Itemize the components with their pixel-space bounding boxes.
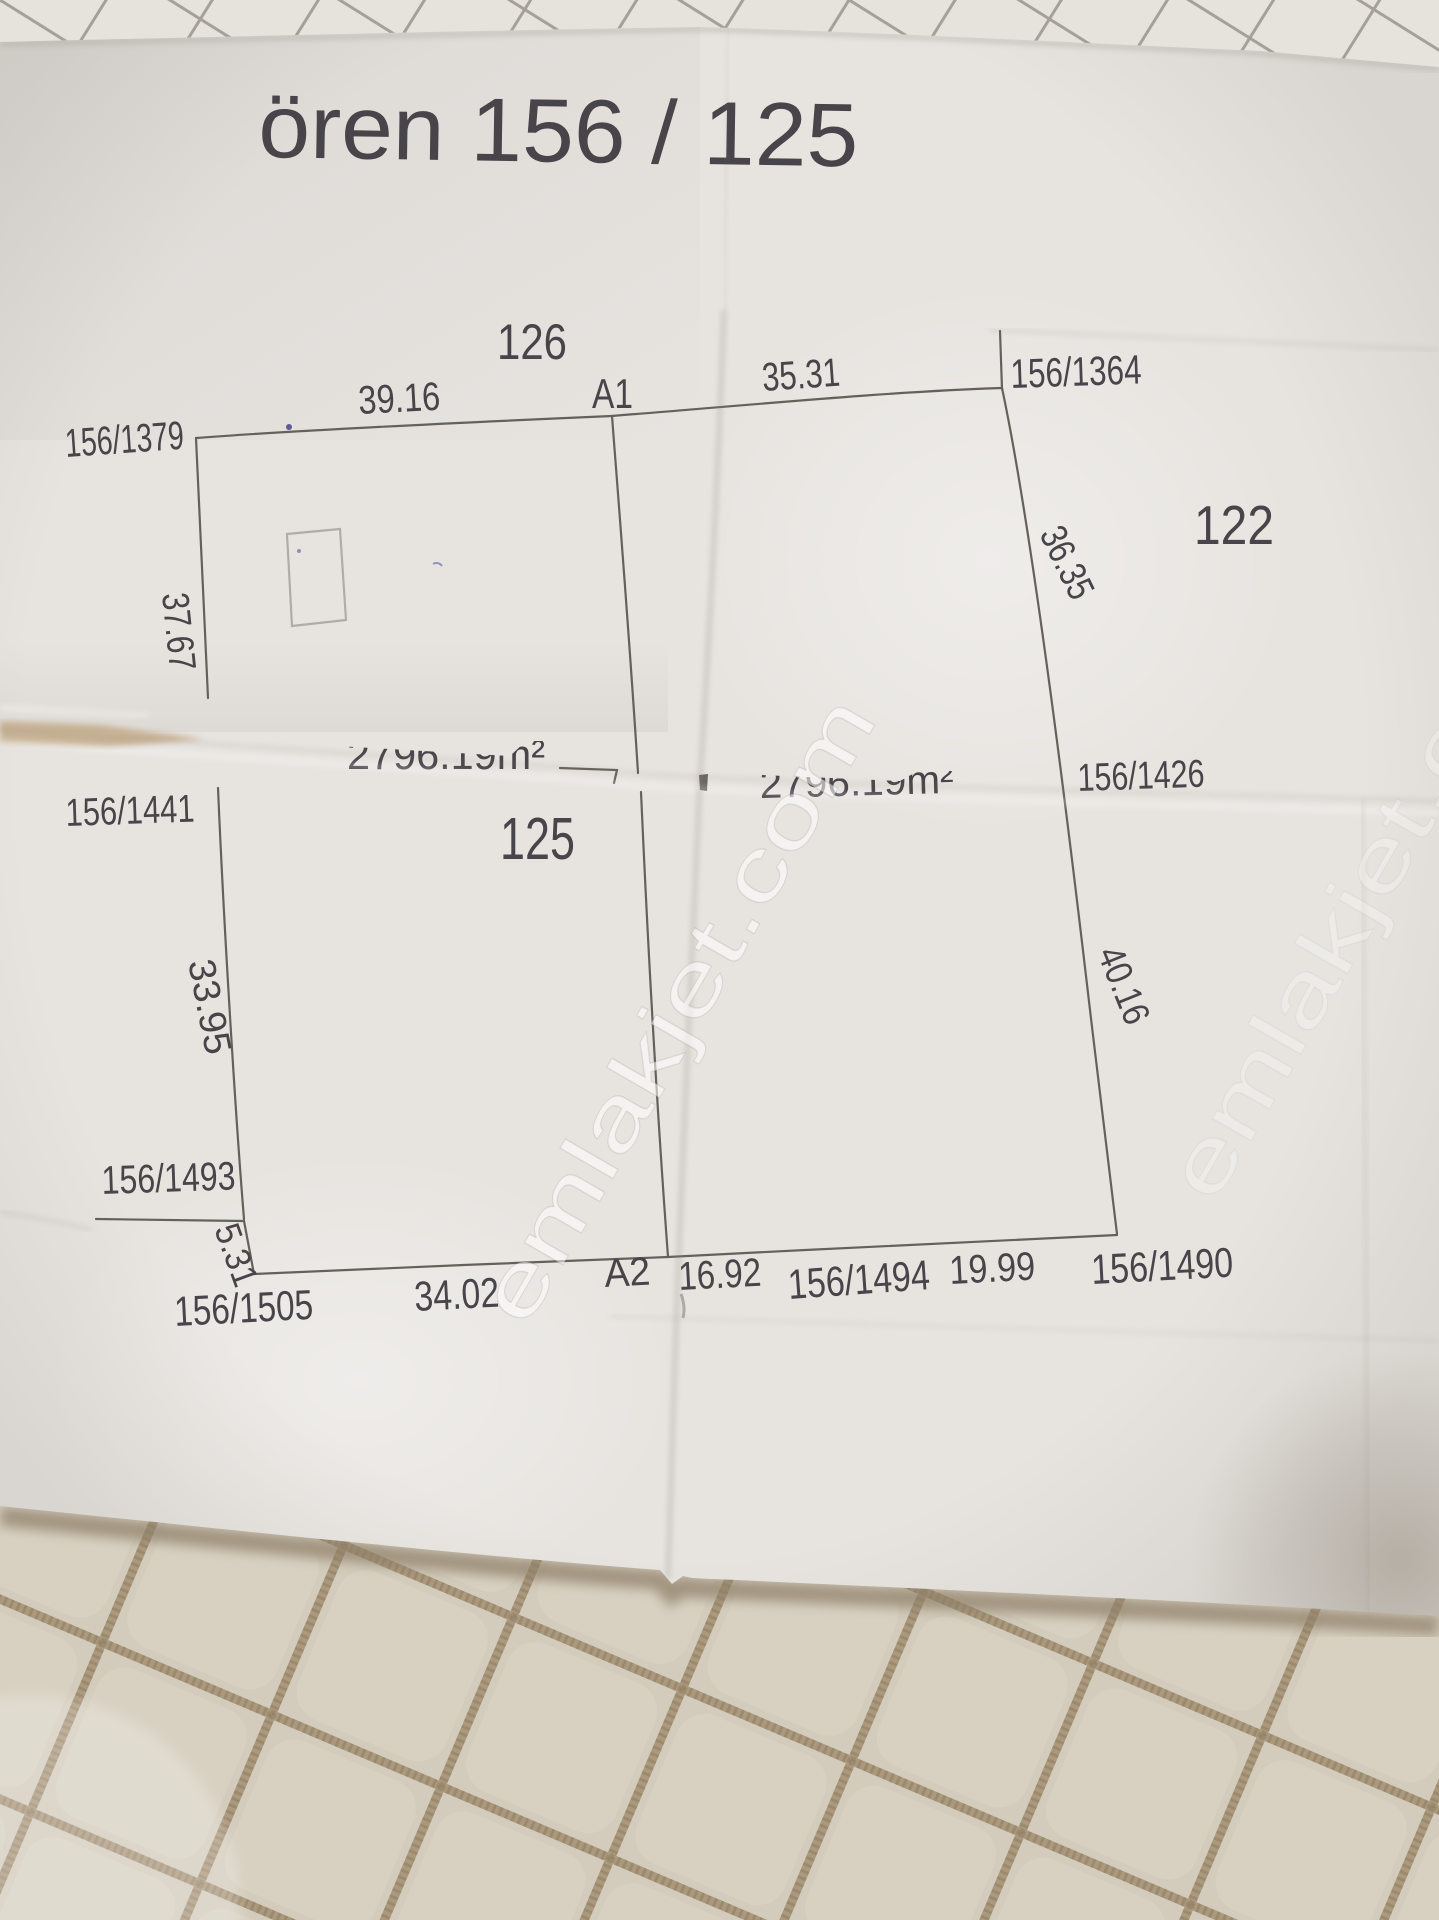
svg-text:A2: A2 xyxy=(603,1250,651,1296)
svg-text:19.99: 19.99 xyxy=(948,1245,1036,1293)
svg-text:156/1493: 156/1493 xyxy=(101,1154,236,1203)
svg-text:156/1364: 156/1364 xyxy=(1010,346,1143,397)
svg-text:16.92: 16.92 xyxy=(677,1251,762,1299)
svg-text:156/1505: 156/1505 xyxy=(173,1281,314,1335)
svg-text:126: 126 xyxy=(497,314,567,370)
svg-text:37.67: 37.67 xyxy=(153,591,203,673)
svg-text:125: 125 xyxy=(500,806,575,872)
svg-text:39.16: 39.16 xyxy=(357,375,441,423)
svg-text:ören 156 / 125: ören 156 / 125 xyxy=(258,77,859,186)
svg-text:A1: A1 xyxy=(592,370,633,417)
svg-text:156/1379: 156/1379 xyxy=(64,414,186,466)
svg-text:156/1494: 156/1494 xyxy=(786,1251,931,1308)
svg-text:156/1490: 156/1490 xyxy=(1090,1239,1234,1293)
svg-text:35.31: 35.31 xyxy=(761,351,842,400)
svg-text:122: 122 xyxy=(1194,494,1274,556)
svg-text:156/1441: 156/1441 xyxy=(65,788,195,835)
